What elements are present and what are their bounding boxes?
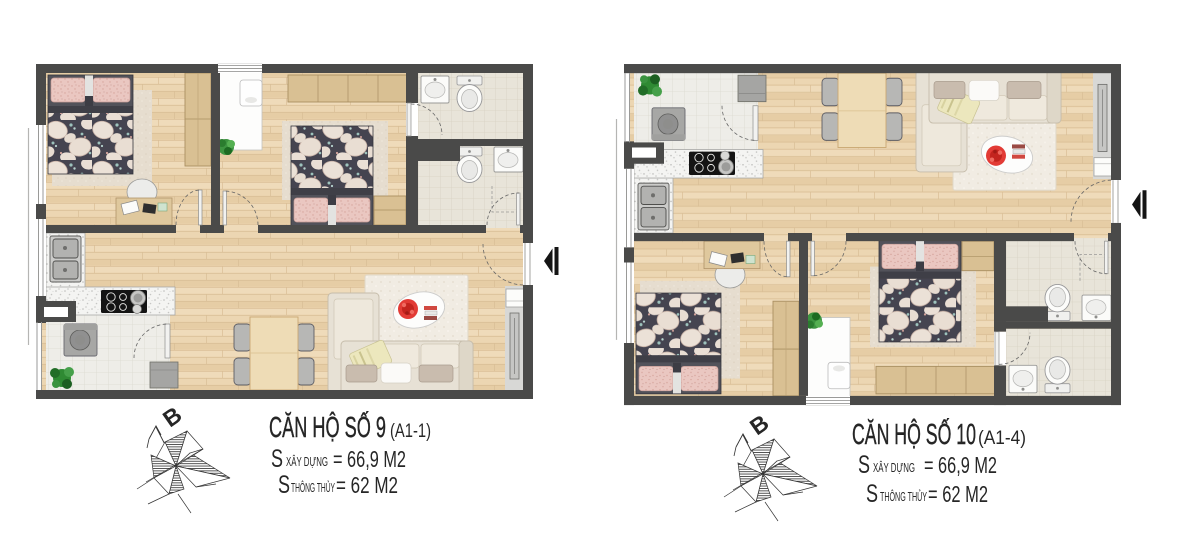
svg-text:(A1-4): (A1-4) <box>978 428 1026 449</box>
svg-text:= 66,9 M2: = 66,9 M2 <box>333 446 406 472</box>
svg-text:CĂN HỘ SỐ 10: CĂN HỘ SỐ 10 <box>852 418 976 451</box>
svg-text:S: S <box>866 480 878 508</box>
svg-text:S: S <box>858 451 870 479</box>
svg-text:= 66,9 M2: = 66,9 M2 <box>924 452 997 478</box>
svg-text:CĂN HỘ SỐ 9: CĂN HỘ SỐ 9 <box>269 411 386 444</box>
svg-text:= 62 M2: = 62 M2 <box>336 472 398 498</box>
svg-text:= 62 M2: = 62 M2 <box>928 481 988 507</box>
svg-text:XÂY DỰNG: XÂY DỰNG <box>873 460 915 475</box>
svg-text:S: S <box>278 471 290 499</box>
svg-text:THÔNG THỦY: THÔNG THỦY <box>880 489 927 504</box>
svg-text:(A1-1): (A1-1) <box>390 421 431 442</box>
svg-text:XÂY DỰNG: XÂY DỰNG <box>286 454 328 469</box>
svg-text:THÔNG THỦY: THÔNG THỦY <box>291 480 335 495</box>
svg-text:S: S <box>271 445 283 473</box>
